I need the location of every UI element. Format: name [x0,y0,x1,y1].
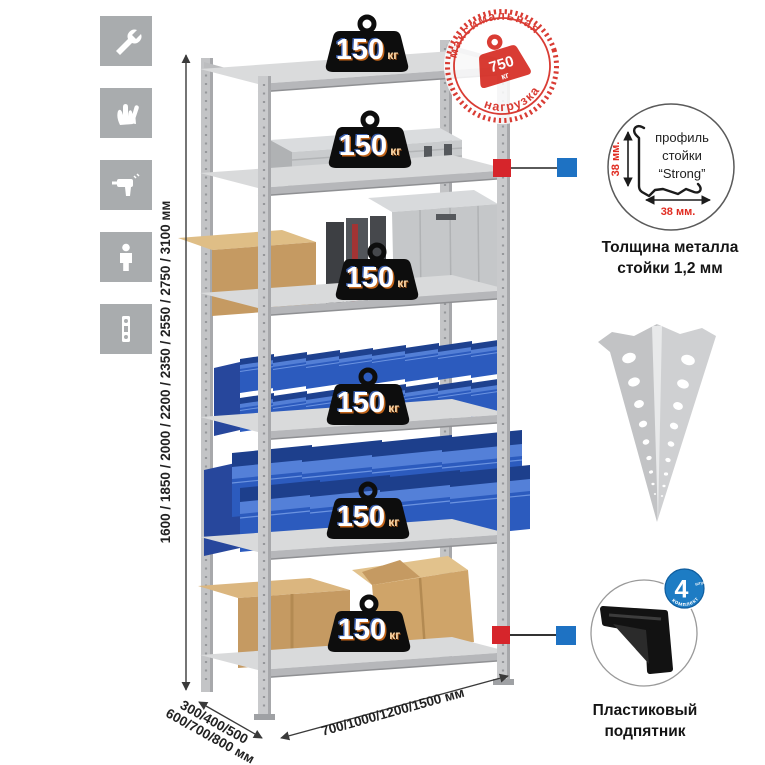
perforated-post-icon [100,304,152,354]
assembly-person-icon [100,232,152,282]
profile-dim-horizontal: 38 мм. [661,206,696,218]
profile-connector [493,158,577,177]
post-profile-detail: 38 мм. 38 мм. профиль стойки “Strong” [606,102,736,232]
foot-connector [492,626,576,645]
gloves-icon [100,88,152,138]
shelf-load-badge: 150кг [322,480,414,544]
max-load-stamp: максимальная нагрузка 750 кг [441,5,563,127]
shelf-load-badge: 150кг [321,13,413,77]
wrench-icon [100,16,152,66]
profile-dim-vertical: 38 мм. [610,142,622,177]
drill-icon [100,160,152,210]
plastic-foot-caption: Пластиковый подпятник [565,701,725,743]
profile-caption: Толщина металла стойки 1,2 мм [580,238,760,280]
profile-label-3: “Strong” [659,166,706,181]
profile-label-2: стойки [662,148,702,163]
shelf-load-badge: 150кг [322,366,414,430]
height-dimension-label: 1600 / 1850 / 2000 / 2200 / 2350 / 2550 … [158,201,173,544]
shelf-load-badge: 150кг [324,109,416,173]
shelf-load-badge: 150кг [331,241,423,305]
angle-post-image [598,324,716,522]
shelving-rack-infographic: 1600 / 1850 / 2000 / 2200 / 2350 / 2550 … [0,0,765,765]
profile-label-1: профиль [655,130,709,145]
included-count-badge: 4 штуки в комплекте [662,566,707,611]
shelf-load-badge: 150кг [323,593,415,657]
width-dimension-label: 700/1000/1200/1500 мм [320,685,466,739]
included-count-value: 4 [675,576,689,604]
